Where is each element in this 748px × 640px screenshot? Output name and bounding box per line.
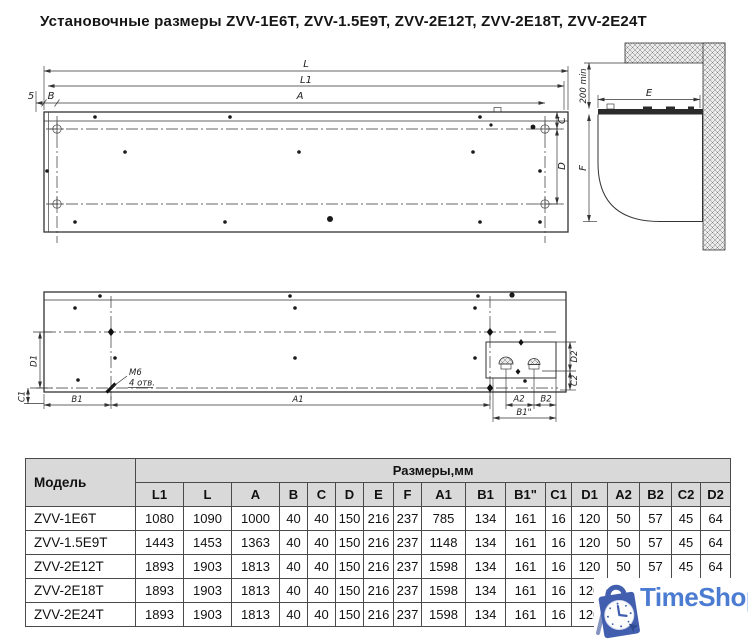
dimension-cell: 1080: [136, 507, 184, 531]
connection-detail-box: [486, 342, 556, 378]
timeshop-watermark: TimeShop: [594, 578, 748, 640]
model-cell: ZVV-2E24T: [26, 603, 136, 627]
dimension-cell: 16: [546, 603, 572, 627]
dimension-cell: 216: [364, 579, 394, 603]
dimension-cell: 161: [506, 579, 546, 603]
unit-body-profile: [598, 115, 703, 222]
dimension-cell: 45: [672, 507, 701, 531]
dimension-cell: 40: [280, 579, 308, 603]
installation-drawing: L L1 A 5 B C D E: [0, 0, 748, 455]
dimension-cell: 50: [608, 555, 640, 579]
holes-note: 4 отв.: [129, 379, 155, 389]
fastener-dots: [45, 115, 542, 224]
dimension-cell: 1443: [136, 531, 184, 555]
dimension-cell: 40: [308, 507, 336, 531]
dimension-cell: 1813: [232, 579, 280, 603]
dimension-cell: 1000: [232, 507, 280, 531]
dimension-cell: 57: [640, 555, 672, 579]
dimension-cell: 1090: [184, 507, 232, 531]
dimension-cell: 40: [280, 531, 308, 555]
timeshop-logo-icon: [595, 577, 641, 640]
dimension-cell: 785: [422, 507, 466, 531]
dim-label-200min: 200 min: [579, 69, 589, 104]
dimension-cell: 134: [466, 555, 506, 579]
column-header-a1: A1: [422, 483, 466, 507]
dimension-cell: 1813: [232, 603, 280, 627]
dimension-cell: 237: [394, 603, 422, 627]
dim-label-5: 5: [28, 91, 34, 102]
top-plan-view: L L1 A 5 B C D: [28, 59, 568, 243]
dim-label-C: C: [557, 117, 568, 124]
dimension-cell: 40: [280, 507, 308, 531]
dimension-cell: 134: [466, 531, 506, 555]
dimension-cell: 150: [336, 531, 364, 555]
dimension-cell: 64: [701, 531, 731, 555]
dimension-cell: 1598: [422, 555, 466, 579]
table-row: ZVV-2E12T1893190318134040150216237159813…: [26, 555, 731, 579]
dimension-cell: 40: [280, 603, 308, 627]
pipe-fitting-icon: [499, 357, 513, 378]
dimension-cell: 57: [640, 531, 672, 555]
dimension-cell: 1363: [232, 531, 280, 555]
dimension-cell: 216: [364, 507, 394, 531]
table-row: ZVV-1E6T10801090100040401502162377851341…: [26, 507, 731, 531]
dim-label-E: E: [646, 88, 653, 99]
dim-label-B1: B1: [71, 395, 82, 405]
dimension-cell: 64: [701, 507, 731, 531]
table-row: ZVV-1.5E9T144314531363404015021623711481…: [26, 531, 731, 555]
dimension-cell: 40: [308, 555, 336, 579]
dimension-cell: 161: [506, 603, 546, 627]
dimension-cell: 237: [394, 531, 422, 555]
dimension-cell: 161: [506, 555, 546, 579]
page: Установочные размеры ZVV-1E6T, ZVV-1.5E9…: [0, 0, 748, 640]
dimension-cell: 150: [336, 603, 364, 627]
dimension-cell: 40: [308, 531, 336, 555]
dimension-cell: 1893: [136, 555, 184, 579]
dimension-cell: 120: [572, 507, 608, 531]
dimension-cell: 1598: [422, 579, 466, 603]
dimension-cell: 150: [336, 507, 364, 531]
timeshop-logo-text: TimeShop: [640, 582, 748, 613]
dim-label-L1: L1: [300, 75, 312, 86]
wall-hatch: [703, 43, 725, 250]
dimension-cell: 120: [572, 555, 608, 579]
dimension-cell: 1893: [136, 579, 184, 603]
dimension-cell: 1903: [184, 555, 232, 579]
dimension-cell: 40: [308, 603, 336, 627]
column-header-c1: C1: [546, 483, 572, 507]
column-header-d1: D1: [572, 483, 608, 507]
dim-label-L: L: [303, 59, 309, 70]
pipe-fitting-icon: [528, 359, 540, 379]
dimension-cell: 45: [672, 531, 701, 555]
dim-label-B: B: [48, 91, 55, 102]
dim-label-D: D: [557, 162, 568, 170]
column-header-b2: B2: [640, 483, 672, 507]
dim-label-C2: C2: [570, 375, 580, 386]
dim-label-C1: C1: [18, 391, 28, 402]
dimension-cell: 237: [394, 579, 422, 603]
side-view: E 200 min F: [578, 43, 725, 250]
dimension-cell: 1903: [184, 579, 232, 603]
dim-label-B2: B2: [540, 395, 551, 405]
dimension-cell: 64: [701, 555, 731, 579]
dimension-cell: 216: [364, 555, 394, 579]
column-header-l1: L1: [136, 483, 184, 507]
dimension-cell: 16: [546, 507, 572, 531]
dim-label-B1sec: B1": [516, 408, 531, 418]
dimension-cell: 1813: [232, 555, 280, 579]
dim-label-A: A: [296, 91, 304, 102]
column-header-d: D: [336, 483, 364, 507]
model-cell: ZVV-1E6T: [26, 507, 136, 531]
dimension-cell: 57: [640, 507, 672, 531]
dimension-cell: 134: [466, 507, 506, 531]
dimension-cell: 161: [506, 531, 546, 555]
column-header-d2: D2: [701, 483, 731, 507]
dim-label-A1: A1: [291, 395, 303, 405]
column-header-a: A: [232, 483, 280, 507]
dimension-cell: 216: [364, 531, 394, 555]
column-header-c2: C2: [672, 483, 701, 507]
dimension-cell: 120: [572, 531, 608, 555]
dimension-cell: 1893: [136, 603, 184, 627]
dim-label-D1: D1: [30, 355, 40, 367]
dimension-cell: 161: [506, 507, 546, 531]
dimension-cell: 40: [308, 579, 336, 603]
dimension-cell: 150: [336, 555, 364, 579]
dimension-cell: 134: [466, 603, 506, 627]
dim-label-F: F: [578, 165, 589, 171]
dimension-cell: 1903: [184, 603, 232, 627]
dim-label-D2: D2: [570, 351, 580, 363]
thread-label-M6: M6: [129, 368, 142, 378]
column-header-f: F: [394, 483, 422, 507]
model-cell: ZVV-2E18T: [26, 579, 136, 603]
unit-top-plate: [598, 109, 703, 115]
dimension-cell: 16: [546, 531, 572, 555]
dimension-cell: 50: [608, 507, 640, 531]
dimension-cell: 50: [608, 531, 640, 555]
column-header-b1: B1: [466, 483, 506, 507]
column-header-e: E: [364, 483, 394, 507]
dimension-cell: 1148: [422, 531, 466, 555]
dimension-cell: 134: [466, 579, 506, 603]
mounting-hole-icon: [50, 122, 552, 211]
dimension-cell: 40: [280, 555, 308, 579]
column-header-c: C: [308, 483, 336, 507]
model-cell: ZVV-1.5E9T: [26, 531, 136, 555]
dimension-cell: 1598: [422, 603, 466, 627]
column-header-a2: A2: [608, 483, 640, 507]
column-header-b1: B1": [506, 483, 546, 507]
dimension-cell: 237: [394, 507, 422, 531]
dim-label-A2: A2: [512, 395, 524, 405]
column-header-l: L: [184, 483, 232, 507]
dimension-cell: 150: [336, 579, 364, 603]
dimension-cell: 45: [672, 555, 701, 579]
dimension-cell: 16: [546, 555, 572, 579]
bottom-plan-view: M6 4 отв.: [18, 292, 581, 422]
sizes-group-header: Размеры,мм: [136, 459, 731, 483]
column-header-b: B: [280, 483, 308, 507]
model-cell: ZVV-2E12T: [26, 555, 136, 579]
dimension-cell: 1453: [184, 531, 232, 555]
dimension-cell: 237: [394, 555, 422, 579]
dimension-cell: 16: [546, 579, 572, 603]
model-column-header: Модель: [26, 459, 136, 507]
dimension-cell: 216: [364, 603, 394, 627]
